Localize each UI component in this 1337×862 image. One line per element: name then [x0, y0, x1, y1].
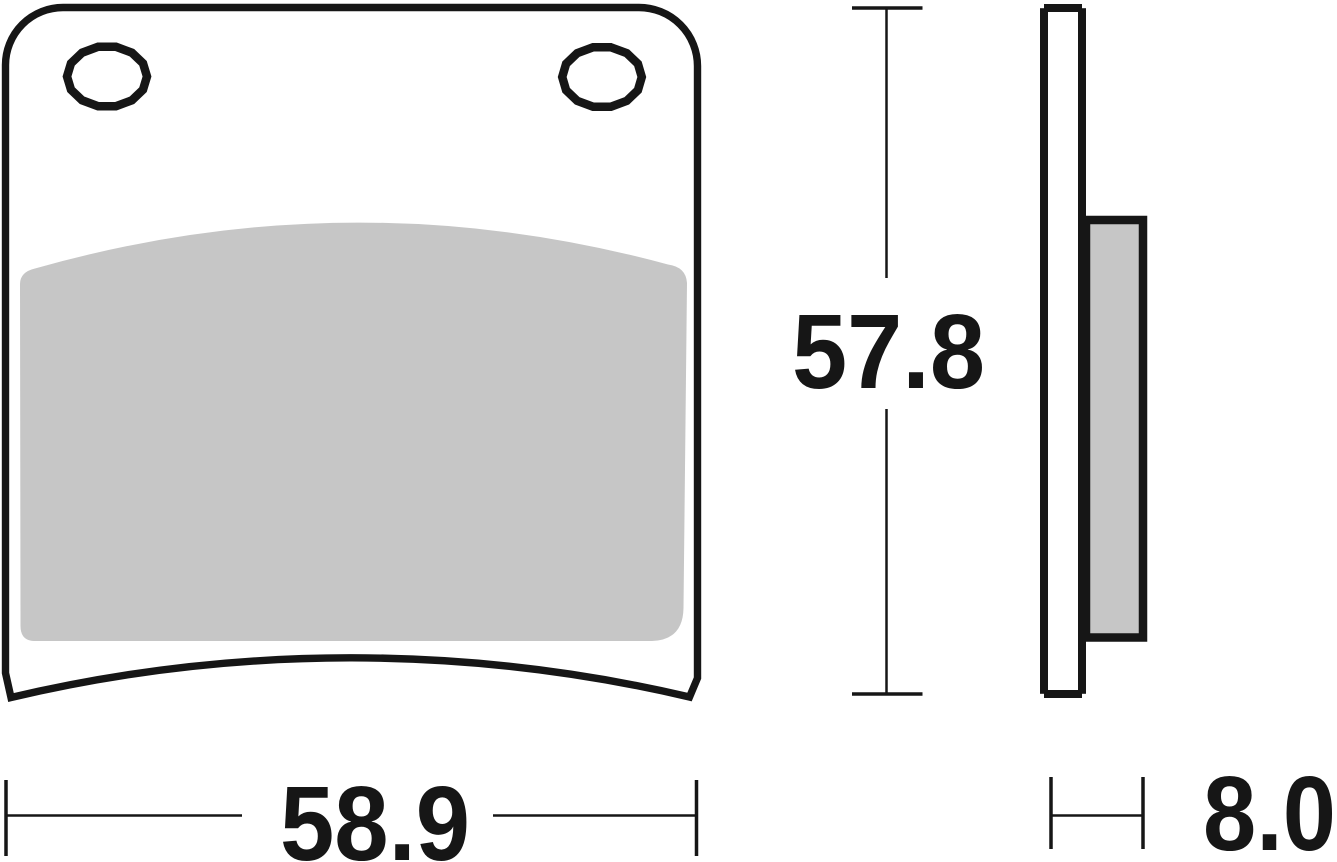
svg-text:8.0: 8.0	[1203, 755, 1336, 862]
svg-text:57.8: 57.8	[792, 293, 985, 411]
svg-text:58.9: 58.9	[280, 765, 470, 862]
